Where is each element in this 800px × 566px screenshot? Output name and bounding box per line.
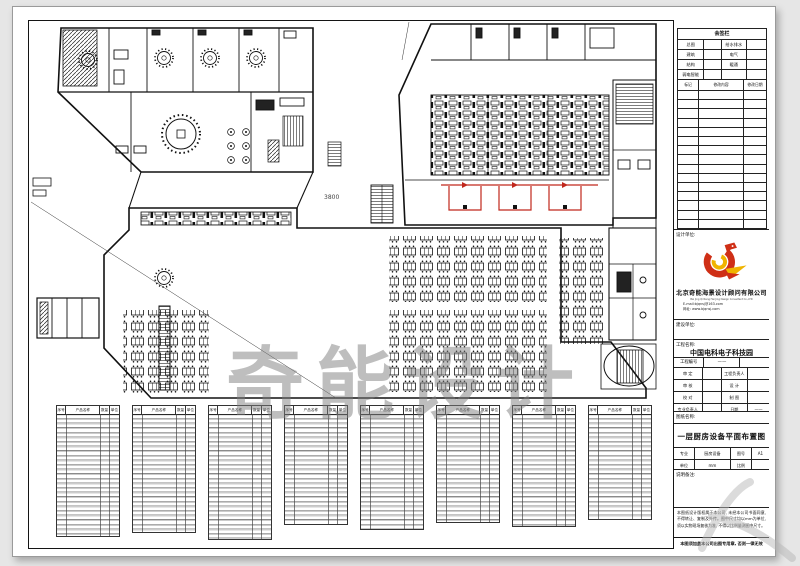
equipment-table-rows (209, 414, 271, 539)
equipment-table-rows (437, 414, 499, 522)
equipment-table: 序号产品名称数量单位 (512, 405, 576, 527)
remark-section: 说明备注: (674, 469, 769, 507)
signoff-section: 会签栏 总图给水排水 建筑电气 结构暖通 弱电智能 标记修改内容修改日期 (674, 20, 769, 229)
spec-section: 专业厨房设备图号A1 单位mm比例 (674, 447, 769, 469)
revision-header: 标记修改内容修改日期 (678, 80, 766, 91)
equipment-table-rows (285, 414, 347, 524)
company-name-cn: 北京奇能海景设计顾问有限公司 (674, 288, 769, 297)
equipment-table: 序号产品名称数量单位 (436, 405, 500, 523)
company-name-en: Bei Jing Qi Neng Hai Jing Design Consult… (679, 297, 765, 301)
wing-northeast-kitchen (399, 24, 656, 228)
west-annex (33, 178, 99, 338)
equipment-list-strip: 序号产品名称数量单位 序号产品名称数量单位 序号产品名称数量单位 序号产品名称数… (28, 405, 673, 547)
signoff-title: 会签栏 (678, 29, 766, 40)
sheet-title: 一层厨房设备平面布置图 (674, 431, 769, 442)
floor-plan-drawing: 3800 (28, 20, 673, 405)
equipment-table: 序号产品名称数量单位 (208, 405, 272, 540)
buffet-counters (463, 205, 567, 209)
owner-label: 建设单位: (676, 322, 696, 328)
project-number-row: 工程编号 —— (674, 357, 769, 367)
notes-section: 本图纸设计版权属于本公司, 未经本公司书面同意, 不得转让、复制及外传。图中尺寸… (674, 507, 769, 537)
drawing-sheet: 3800 (12, 6, 776, 557)
equipment-table-rows (133, 414, 195, 532)
dining-table-rows (123, 236, 607, 394)
sheet-name-section: 图纸名称: (674, 411, 769, 423)
banquet-round-tables (79, 49, 265, 163)
project-name-section: 工程名称: 中国电科电子科技园 (674, 339, 769, 357)
equipment-table: 序号产品名称数量单位 (588, 405, 652, 520)
project-number-value: —— (704, 358, 740, 367)
equipment-table: 序号产品名称数量单位 (56, 405, 120, 537)
company-logo (695, 239, 749, 283)
project-name: 中国电科电子科技园 (674, 348, 769, 357)
equipment-table-rows (589, 414, 651, 519)
wing-northwest (58, 28, 313, 172)
approvals-section: 审 定工程负责人 审 核设 计 校 对制 图 专业负责人日期—— (674, 367, 769, 411)
central-court (328, 142, 393, 223)
equipment-table-rows (513, 414, 575, 526)
copyright-notes: 本图纸设计版权属于本公司, 未经本公司书面同意, 不得转让、复制及外传。图中尺寸… (677, 510, 766, 529)
equipment-table: 序号产品名称数量单位 (284, 405, 348, 525)
southeast-rooms (601, 228, 656, 389)
equipment-table: 序号产品名称数量单位 (132, 405, 196, 533)
design-unit-label: 设计单位: (676, 232, 696, 238)
equipment-table-rows (57, 414, 119, 536)
equipment-table: 序号产品名称数量单位 (360, 405, 424, 530)
sheet-name-label: 图纸名称: (676, 414, 696, 420)
project-name-label: 工程名称: (676, 342, 696, 348)
equipment-table-rows (361, 414, 423, 529)
company-website: 网址: www.bjqnsj.com (674, 306, 769, 311)
desktop-background: 3800 (0, 0, 800, 566)
title-block: 会签栏 总图给水排水 建筑电气 结构暖通 弱电智能 标记修改内容修改日期 (673, 20, 769, 549)
project-number-label: 工程编号 (674, 358, 704, 367)
dimension-label: 3800 (324, 194, 339, 201)
design-unit-section: 设计单位: 北京奇能海景设计顾问有限公司 Bei Jing Qi Neng Ha… (674, 229, 769, 319)
stamp-note: 本图须加盖本公司出图专用章, 否则一律无效 (674, 537, 769, 550)
sheet-title-section: 一层厨房设备平面布置图 (674, 423, 769, 447)
owner-section: 建设单位: (674, 319, 769, 339)
remark-label: 说明备注: (676, 472, 696, 478)
floor-plan-area: 3800 (28, 20, 673, 549)
signoff-table: 会签栏 总图给水排水 建筑电气 结构暖通 弱电智能 标记修改内容修改日期 (677, 28, 767, 229)
company-email: E-mail:bjqnsj@163.com (674, 302, 769, 306)
